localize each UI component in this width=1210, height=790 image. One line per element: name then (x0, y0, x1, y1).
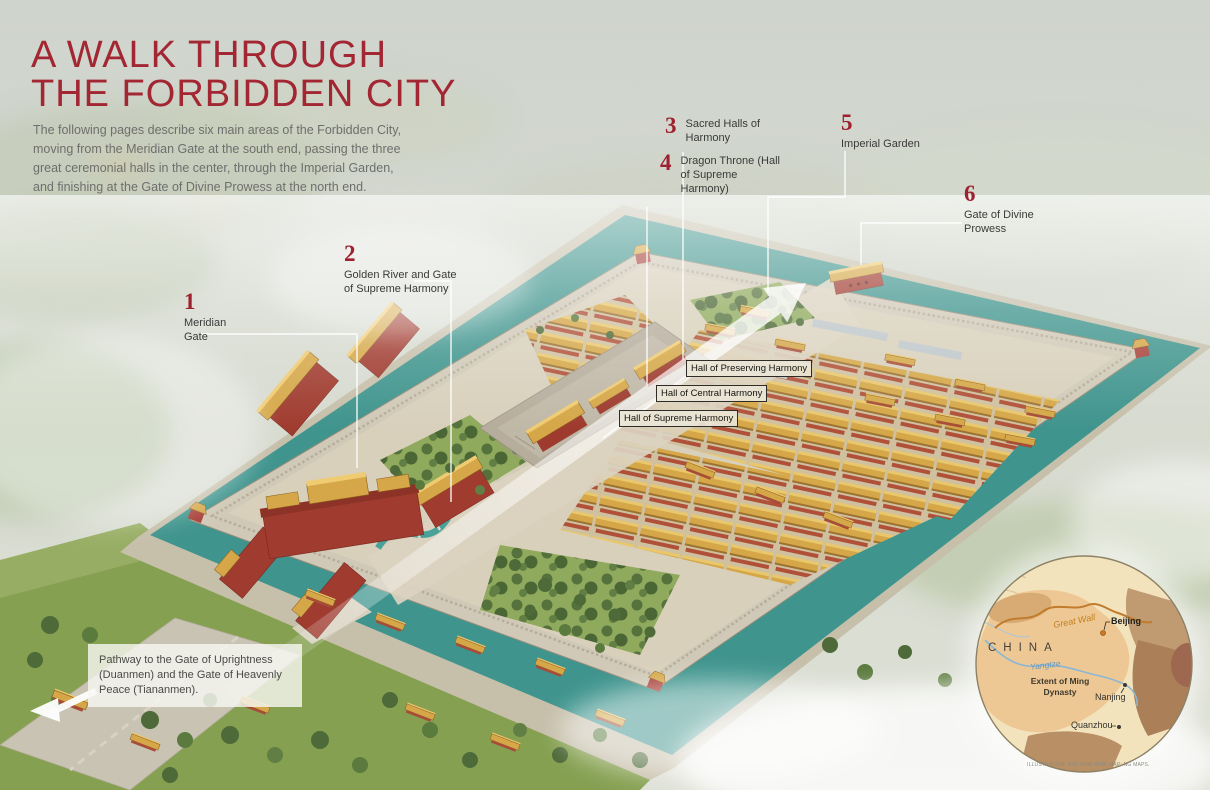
callout-dragon-throne: 4 Dragon Throne (Hall of Supreme Harmony… (660, 153, 789, 196)
intro-paragraph: The following pages describe six main ar… (33, 121, 405, 197)
label-hall-of-central-harmony: Hall of Central Harmony (656, 385, 767, 402)
callout-number-3: 3 (665, 116, 677, 145)
pathway-caption: Pathway to the Gate of Uprightness (Duan… (88, 644, 302, 707)
inset-city-quanzhou: Quanzhou (1071, 720, 1113, 730)
callout-meridian-gate: 1 Meridian Gate (184, 291, 246, 344)
callout-number-4: 4 (660, 153, 672, 196)
credit-line: ILLUSTRATION: SOL 90/ALBUM; MAP: NG MAPS… (1027, 762, 1150, 768)
callout-label-6: Gate of Divine Prowess (964, 208, 1049, 236)
callout-label-3: Sacred Halls of Harmony (686, 117, 781, 145)
callout-label-5: Imperial Garden (841, 137, 920, 151)
inset-map (964, 544, 1205, 784)
page-title-line2: THE FORBIDDEN CITY (31, 75, 551, 114)
infographic-page: A WALK THROUGH THE FORBIDDEN CITY The fo… (0, 0, 1210, 790)
inset-ming-extent-label: Extent of Ming Dynasty (1024, 676, 1096, 698)
callout-number-2: 2 (344, 243, 462, 265)
label-hall-of-preserving-harmony: Hall of Preserving Harmony (686, 360, 812, 377)
inset-city-nanjing: Nanjing (1095, 692, 1126, 702)
callout-golden-river: 2 Golden River and Gate of Supreme Harmo… (344, 243, 462, 296)
inset-country-label: CHINA (988, 642, 1059, 654)
callout-number-1: 1 (184, 291, 246, 313)
callout-number-5: 5 (841, 112, 920, 134)
callout-number-6: 6 (964, 183, 1049, 205)
callout-label-2: Golden River and Gate of Supreme Harmony (344, 268, 462, 296)
page-title: A WALK THROUGH THE FORBIDDEN CITY (31, 36, 551, 114)
callout-label-1: Meridian Gate (184, 316, 246, 344)
label-hall-of-supreme-harmony: Hall of Supreme Harmony (619, 410, 738, 427)
inset-city-beijing: Beijing (1111, 616, 1141, 626)
callout-sacred-halls: 3 Sacred Halls of Harmony (665, 116, 781, 145)
callout-divine-prowess: 6 Gate of Divine Prowess (964, 183, 1049, 236)
callout-imperial-garden: 5 Imperial Garden (841, 112, 920, 151)
page-title-line1: A WALK THROUGH (31, 36, 551, 75)
callout-label-4: Dragon Throne (Hall of Supreme Harmony) (681, 154, 789, 196)
